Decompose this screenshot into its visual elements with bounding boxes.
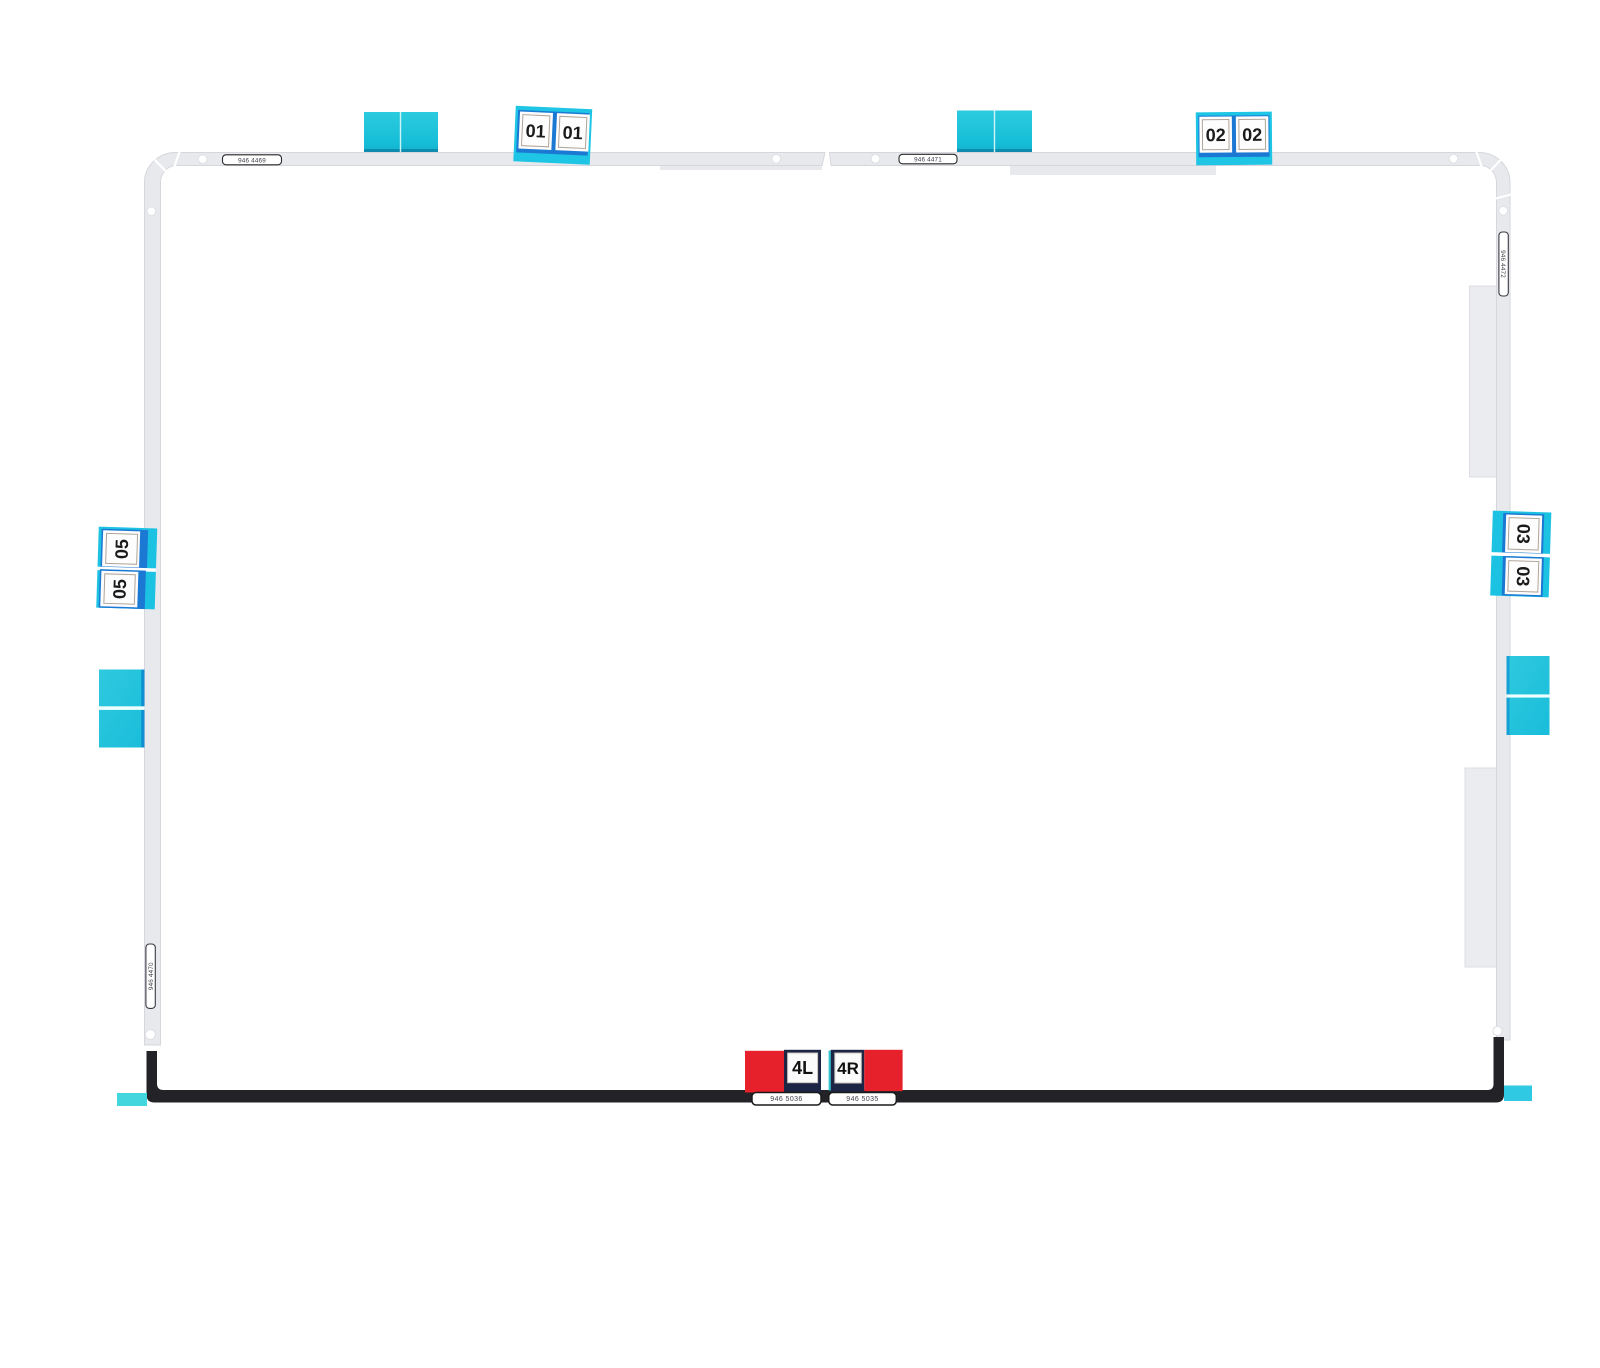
svg-text:946 4471: 946 4471 bbox=[914, 157, 942, 164]
svg-text:05: 05 bbox=[110, 579, 131, 600]
svg-text:02: 02 bbox=[1242, 125, 1262, 145]
svg-text:01: 01 bbox=[525, 121, 546, 142]
svg-text:4L: 4L bbox=[792, 1058, 813, 1078]
svg-text:946 4470: 946 4470 bbox=[148, 962, 155, 990]
svg-text:02: 02 bbox=[1206, 125, 1226, 145]
svg-text:946 4472: 946 4472 bbox=[1499, 250, 1506, 278]
svg-text:946 4469: 946 4469 bbox=[238, 157, 266, 164]
svg-text:4R: 4R bbox=[837, 1059, 859, 1078]
svg-text:05: 05 bbox=[112, 539, 133, 560]
svg-text:03: 03 bbox=[1513, 524, 1534, 545]
svg-text:946 5035: 946 5035 bbox=[846, 1096, 878, 1103]
svg-text:01: 01 bbox=[562, 122, 583, 143]
svg-text:946 5036: 946 5036 bbox=[770, 1096, 802, 1103]
svg-text:03: 03 bbox=[1513, 566, 1534, 587]
